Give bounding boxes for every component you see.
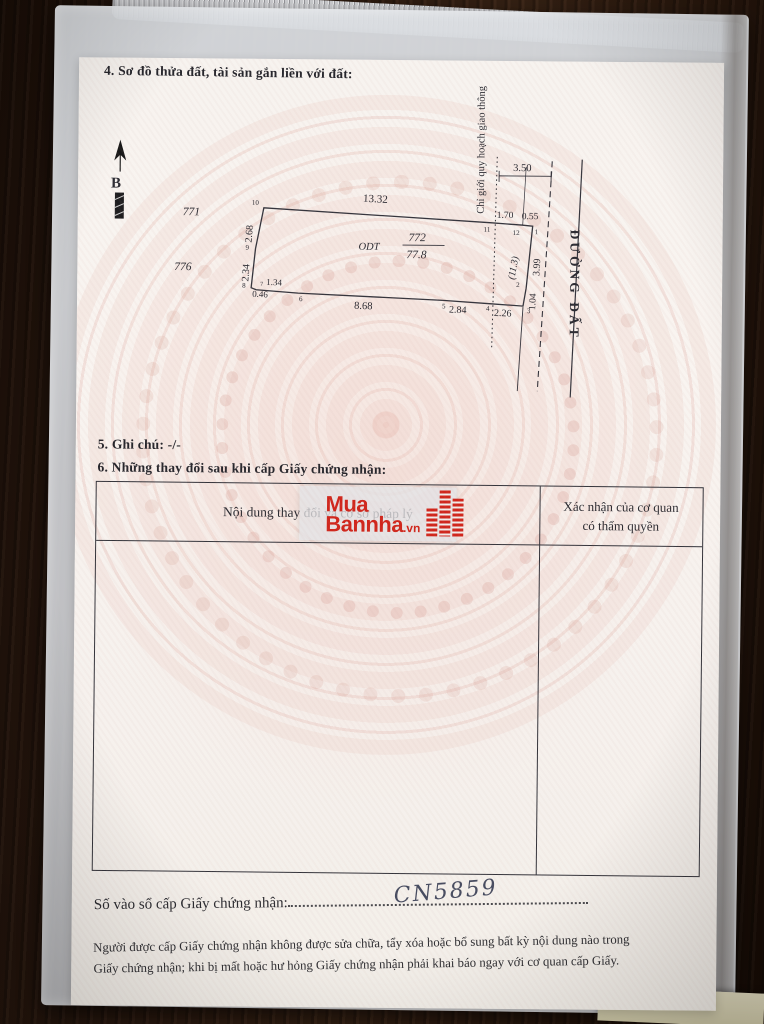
- dim-left-upper: 2.68: [244, 225, 256, 243]
- photo-of-land-certificate: 4. Sơ đồ thửa đất, tài sản gắn liền với …: [0, 0, 764, 1024]
- vertex-7: 7: [260, 282, 263, 288]
- parcel-area: 77.8: [406, 249, 426, 261]
- city-buildings-icon: [426, 487, 464, 536]
- vertex-9: 9: [245, 244, 249, 252]
- dim-top-right-a: 1.70: [497, 211, 514, 221]
- parcel-771-label: 771: [183, 206, 200, 218]
- road-label: ĐƯỜNG ĐẤT: [567, 229, 583, 339]
- plot-outline: [251, 208, 533, 306]
- vertex-3: 3: [527, 307, 531, 315]
- dim-right-upper: 3.99: [531, 258, 543, 276]
- vertex-1: 1: [535, 228, 539, 236]
- north-arrow-icon: B: [111, 139, 127, 218]
- parcel-centre-label: ODT 772 77.8: [358, 232, 444, 262]
- dim-bottom-main: 8.68: [354, 301, 373, 313]
- dim-bottom-right: 2.26: [494, 308, 512, 320]
- planning-boundary-line: [492, 157, 498, 349]
- dim-top-right-b: 0.55: [522, 212, 539, 222]
- changes-table: Nội dung thay đổi và cơ sở pháp lý Xác n…: [92, 481, 704, 877]
- dim-planning-depth: (11.3): [506, 255, 521, 281]
- dim-road-span: 3.50: [513, 163, 531, 174]
- dim-bottom-mid: 2.84: [449, 304, 467, 316]
- vertex-12: 12: [513, 229, 521, 237]
- vertex-6: 6: [299, 295, 303, 303]
- footer-notice: Người được cấp Giấy chứng nhận không đượ…: [93, 928, 696, 979]
- serial-number-row: Số vào sổ cấp Giấy chứng nhận:CN5859: [94, 889, 694, 914]
- serial-label: Số vào sổ cấp Giấy chứng nhận:: [94, 895, 288, 913]
- section5-note: 5. Ghi chú: -/-: [98, 436, 181, 453]
- vertex-11: 11: [484, 226, 491, 234]
- cadastral-diagram: B 771 776 3.50: [91, 60, 614, 410]
- certificate-page: 4. Sơ đồ thửa đất, tài sản gắn liền với …: [71, 57, 724, 1011]
- vertex-8: 8: [242, 282, 246, 290]
- handwritten-serial-value: CN5859: [393, 875, 499, 908]
- building-bar: [452, 499, 463, 537]
- table-header-confirmation-line2: có thẩm quyền: [582, 516, 659, 536]
- table-header-confirmation: Xác nhận của cơ quan có thẩm quyền: [540, 486, 702, 546]
- logo-suffix: .vn: [403, 521, 420, 535]
- vertex-4: 4: [486, 305, 490, 313]
- dim-left-lower: 2.34: [240, 264, 252, 282]
- building-bar: [426, 508, 437, 536]
- logo-line2: Bannha.vn: [325, 514, 420, 535]
- north-label: B: [111, 175, 121, 191]
- muabannha-watermark-logo: Mua Bannha.vn: [299, 486, 457, 542]
- building-bar: [439, 490, 450, 536]
- vertex-10: 10: [252, 199, 260, 207]
- logo-wordmark: Mua Bannha.vn: [325, 494, 421, 541]
- dim-bottom-jog-b: 1.34: [266, 277, 283, 288]
- plot-edge-extension: [517, 307, 523, 391]
- parcel-776-label: 776: [174, 261, 192, 273]
- dotted-leader: CN5859: [288, 890, 588, 907]
- dim-top: 13.32: [363, 193, 388, 206]
- vertex-2: 2: [516, 281, 520, 289]
- parcel-number: 772: [409, 232, 427, 244]
- section6-title: 6. Những thay đổi sau khi cấp Giấy chứng…: [98, 459, 387, 478]
- dim-bottom-jog-a: 0.46: [252, 289, 269, 300]
- land-use-code: ODT: [358, 242, 380, 253]
- vertex-5: 5: [442, 302, 446, 310]
- planning-note-label: Chỉ giới quy hoạch giao thông: [476, 85, 488, 214]
- table-header-confirmation-line1: Xác nhận của cơ quan: [563, 496, 678, 517]
